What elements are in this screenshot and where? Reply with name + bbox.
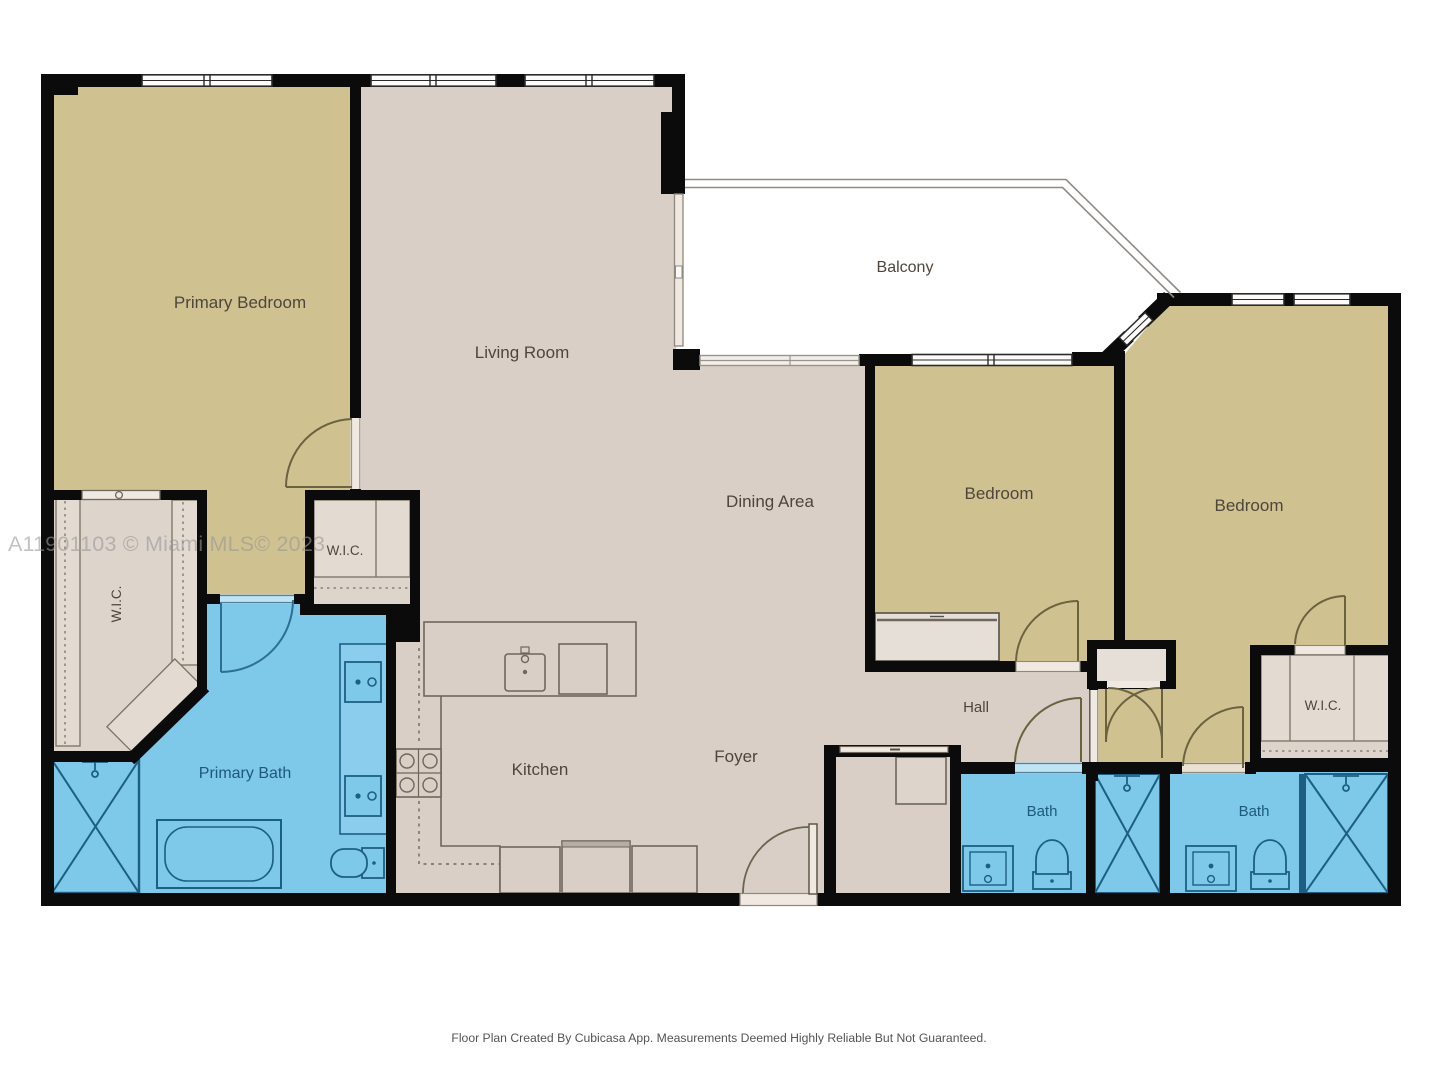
- svg-text:Living Room: Living Room: [475, 343, 570, 362]
- svg-text:Balcony: Balcony: [877, 259, 934, 276]
- svg-text:Bath: Bath: [1027, 803, 1058, 820]
- svg-text:Kitchen: Kitchen: [512, 760, 569, 779]
- svg-text:Foyer: Foyer: [714, 747, 758, 766]
- svg-text:Primary Bath: Primary Bath: [199, 765, 291, 782]
- svg-text:Floor Plan Created By Cubicasa: Floor Plan Created By Cubicasa App. Meas…: [451, 1031, 986, 1045]
- svg-text:A11901103 © Miami MLS© 2023: A11901103 © Miami MLS© 2023: [8, 532, 325, 556]
- svg-text:Primary Bedroom: Primary Bedroom: [174, 293, 306, 312]
- svg-text:Dining Area: Dining Area: [726, 492, 814, 511]
- svg-text:Bedroom: Bedroom: [1215, 496, 1284, 515]
- svg-text:Bedroom: Bedroom: [965, 484, 1034, 503]
- svg-text:W.I.C.: W.I.C.: [109, 586, 124, 623]
- svg-text:W.I.C.: W.I.C.: [327, 543, 364, 558]
- svg-text:Bath: Bath: [1239, 803, 1270, 820]
- svg-text:W.I.C.: W.I.C.: [1305, 698, 1342, 713]
- svg-text:Hall: Hall: [963, 699, 989, 716]
